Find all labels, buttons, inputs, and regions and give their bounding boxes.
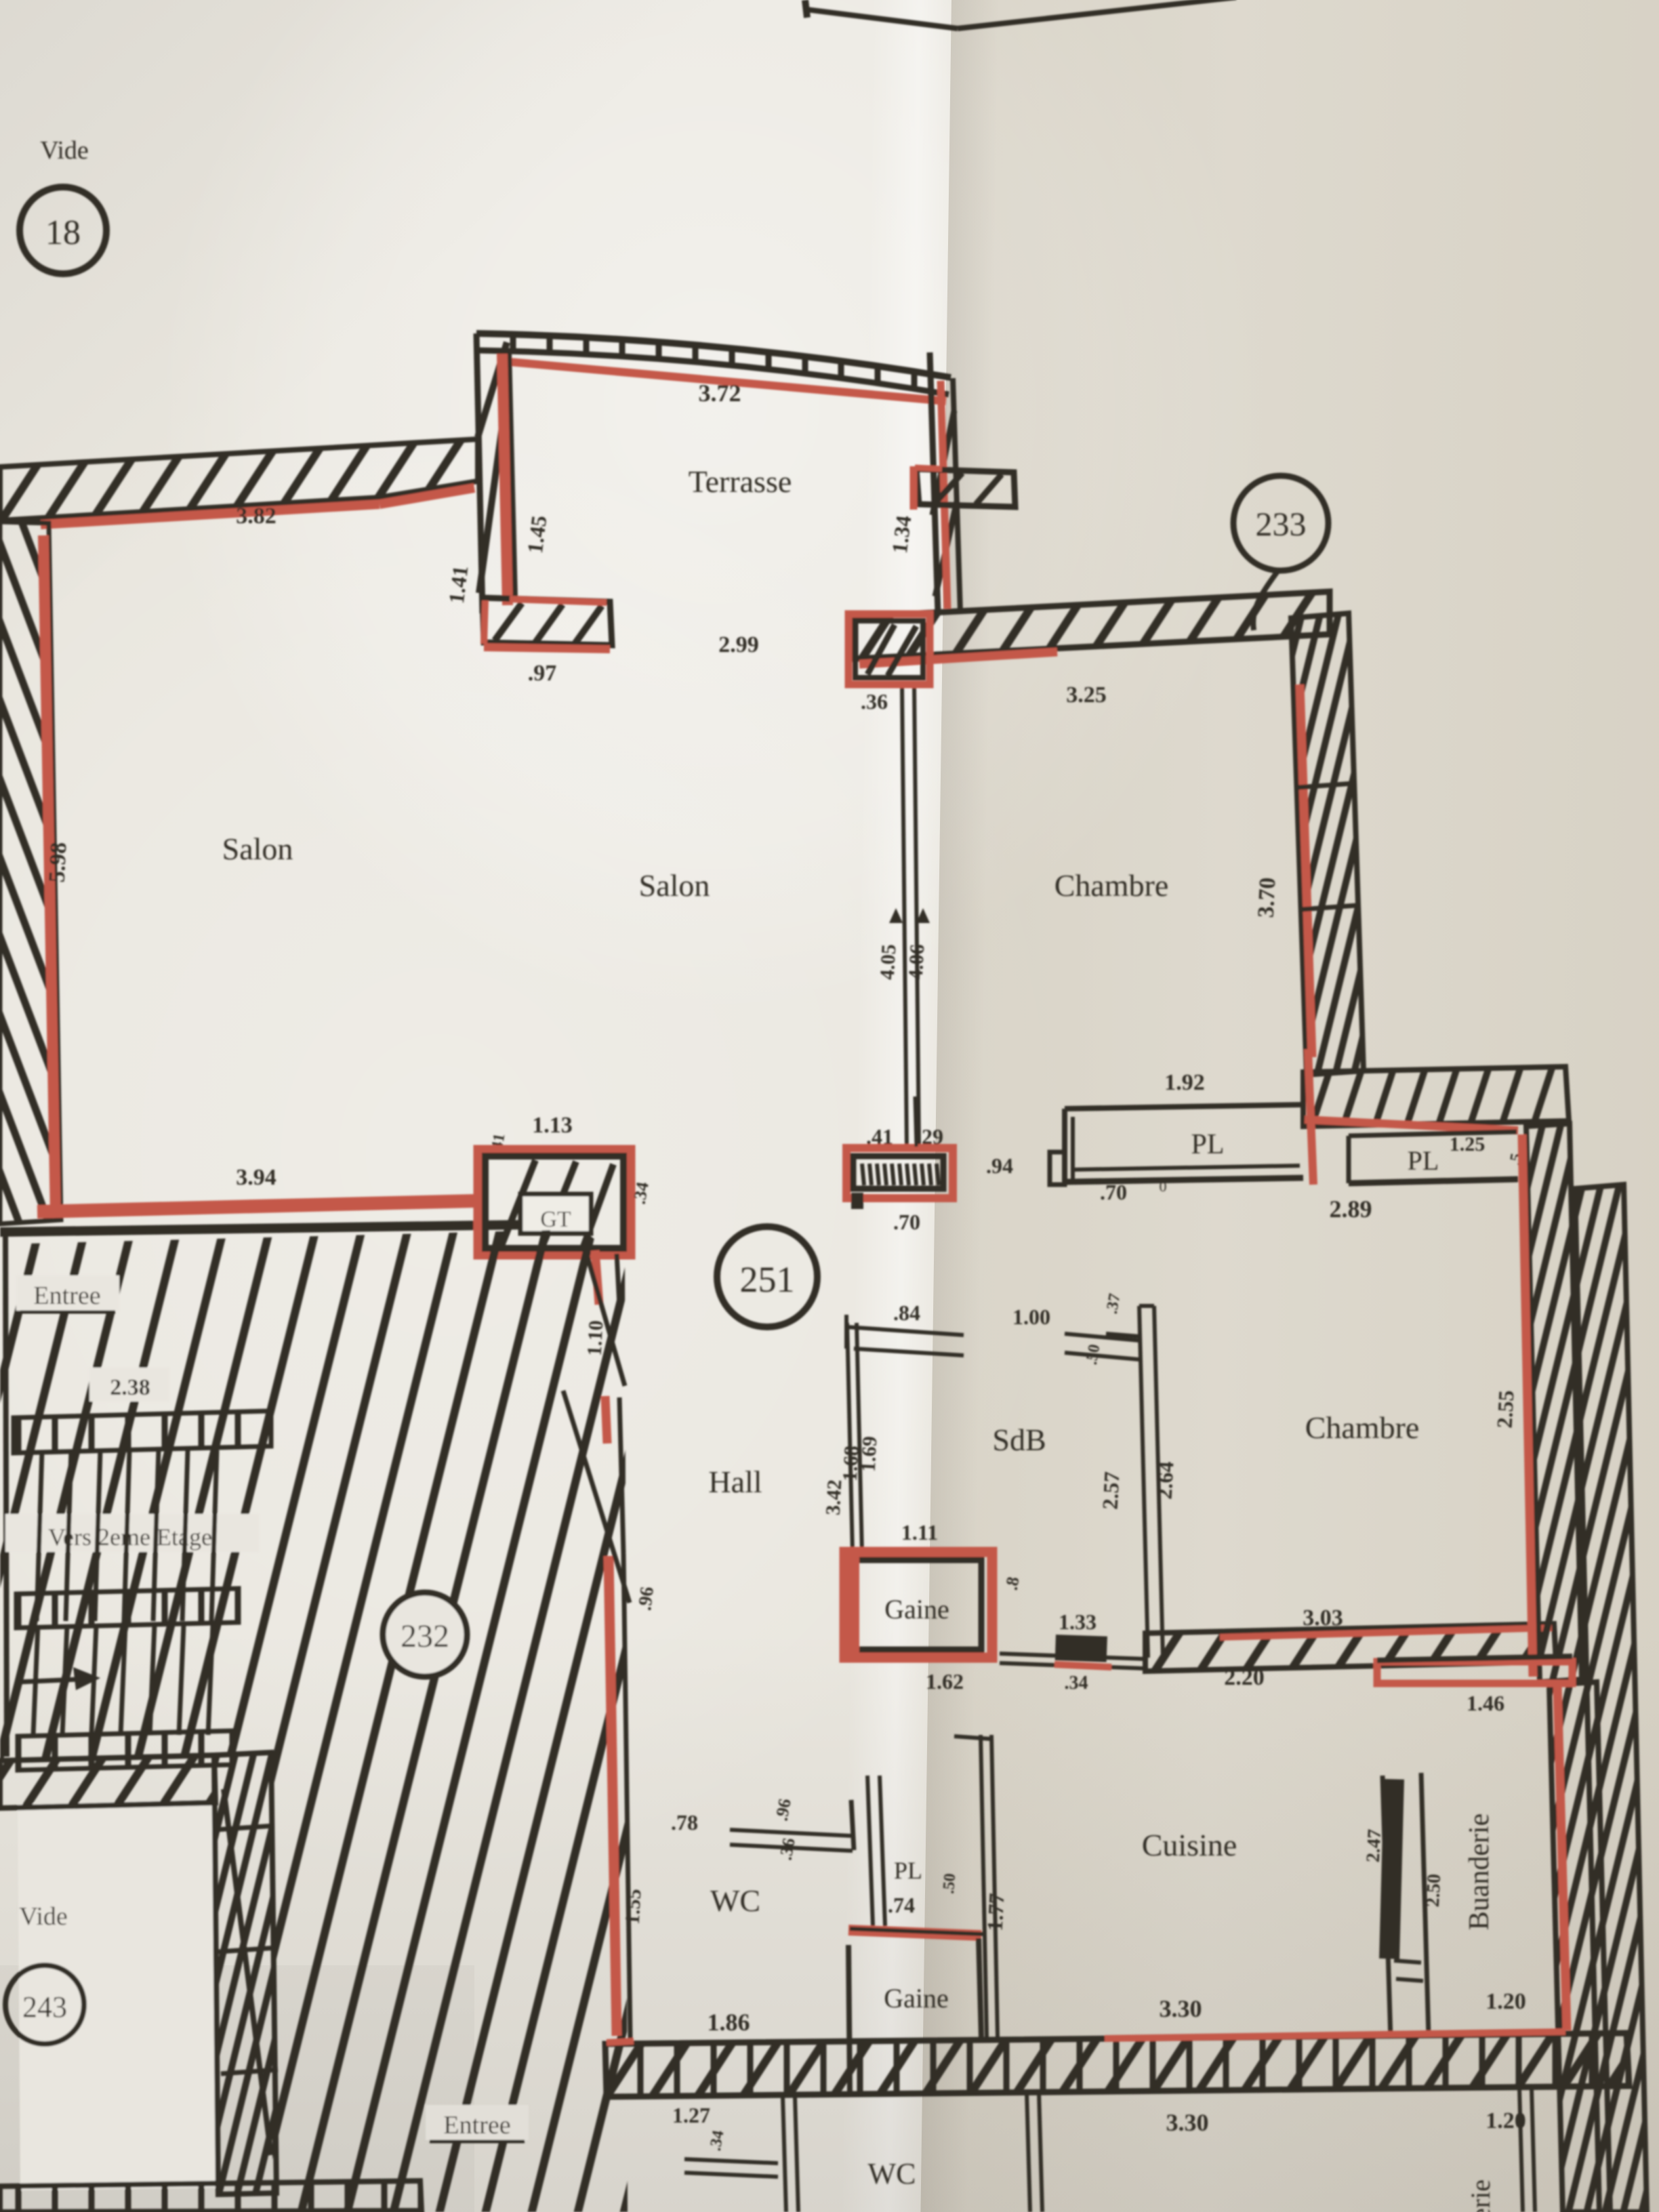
- svg-text:Hall: Hall: [708, 1465, 762, 1499]
- svg-text:.84: .84: [893, 1300, 920, 1325]
- svg-text:2.99: 2.99: [718, 632, 759, 657]
- svg-text:SdB: SdB: [992, 1422, 1046, 1457]
- svg-text:1.68: 1.68: [839, 1445, 863, 1481]
- svg-text:.70: .70: [893, 1210, 920, 1234]
- svg-text:.36: .36: [861, 689, 888, 714]
- svg-text:.78: .78: [671, 1810, 698, 1835]
- svg-text:erie: erie: [1465, 2179, 1496, 2212]
- svg-text:1.77: 1.77: [983, 1893, 1009, 1932]
- svg-text:1.20: 1.20: [1486, 1989, 1526, 2014]
- svg-text:Chambre: Chambre: [1305, 1410, 1420, 1445]
- svg-text:.37: .37: [1103, 1292, 1124, 1315]
- svg-text:Salon: Salon: [222, 832, 293, 866]
- svg-text:.41: .41: [866, 1124, 893, 1149]
- svg-text:2.20: 2.20: [1224, 1665, 1265, 1690]
- svg-text:18: 18: [45, 213, 81, 252]
- svg-text:Cuisine: Cuisine: [1142, 1828, 1237, 1862]
- svg-text:3.70: 3.70: [1253, 877, 1280, 918]
- svg-text:2.47: 2.47: [1363, 1828, 1386, 1863]
- svg-text:5.98: 5.98: [44, 842, 71, 883]
- svg-text:3.82: 3.82: [236, 504, 276, 529]
- svg-text:.96: .96: [634, 1586, 658, 1612]
- svg-text:Chambre: Chambre: [1054, 868, 1169, 903]
- svg-text:3.94: 3.94: [236, 1165, 276, 1190]
- svg-text:2.64: 2.64: [1152, 1461, 1179, 1500]
- svg-text:1.41: 1.41: [444, 565, 473, 605]
- svg-text:Vide: Vide: [40, 136, 89, 165]
- svg-text:Vide: Vide: [19, 1902, 68, 1931]
- svg-text:1.13: 1.13: [532, 1113, 573, 1138]
- svg-text:3.72: 3.72: [699, 380, 741, 407]
- svg-text:4.06: 4.06: [905, 943, 929, 980]
- svg-text:4.05: 4.05: [876, 943, 901, 980]
- svg-text:3.25: 3.25: [1066, 682, 1107, 708]
- svg-text:2.38: 2.38: [110, 1375, 150, 1400]
- svg-text:1.92: 1.92: [1164, 1070, 1205, 1095]
- svg-text:1.33: 1.33: [1059, 1610, 1097, 1634]
- svg-text:.34: .34: [707, 2129, 728, 2152]
- svg-text:GT: GT: [540, 1207, 571, 1232]
- svg-text:1.34: 1.34: [887, 514, 916, 555]
- svg-text:2.55: 2.55: [1492, 1390, 1519, 1429]
- svg-text:PL: PL: [1191, 1129, 1224, 1160]
- svg-text:.29: .29: [916, 1124, 943, 1149]
- svg-text:.50: .50: [940, 1872, 960, 1894]
- svg-text:.34: .34: [1065, 1673, 1088, 1694]
- svg-text:1.11: 1.11: [901, 1520, 938, 1544]
- svg-text:1.27: 1.27: [672, 2103, 710, 2127]
- svg-text:.36: .36: [776, 1837, 799, 1862]
- svg-text:1.25: 1.25: [1450, 1133, 1486, 1155]
- svg-text:1.45: 1.45: [523, 514, 552, 555]
- svg-text:232: 232: [401, 1618, 449, 1654]
- svg-text:WC: WC: [868, 2157, 916, 2190]
- svg-text:2.57: 2.57: [1098, 1471, 1124, 1511]
- svg-text:.74: .74: [888, 1893, 915, 1917]
- svg-text:Gaine: Gaine: [884, 1594, 949, 1624]
- svg-text:Terrasse: Terrasse: [689, 464, 792, 499]
- svg-text:.94: .94: [986, 1153, 1013, 1178]
- svg-text:3.42: 3.42: [822, 1479, 846, 1515]
- svg-text:.34: .34: [630, 1181, 653, 1206]
- svg-text:2.89: 2.89: [1330, 1195, 1372, 1223]
- svg-text:1.55: 1.55: [621, 1888, 646, 1925]
- svg-text:WC: WC: [710, 1883, 760, 1918]
- svg-text:1.86: 1.86: [708, 2009, 750, 2036]
- svg-text:PL: PL: [894, 1857, 922, 1884]
- svg-text:.97: .97: [528, 661, 557, 686]
- svg-text:1.62: 1.62: [926, 1669, 964, 1694]
- svg-text:.96: .96: [772, 1797, 795, 1822]
- svg-text:251: 251: [740, 1259, 795, 1300]
- svg-text:1.10: 1.10: [583, 1319, 608, 1356]
- svg-text:Gaine: Gaine: [884, 1983, 949, 2013]
- svg-text:.70: .70: [1100, 1180, 1127, 1204]
- svg-text:1.46: 1.46: [1467, 1691, 1504, 1715]
- svg-text:3.30: 3.30: [1166, 2109, 1209, 2136]
- svg-text:Buanderie: Buanderie: [1464, 1814, 1495, 1931]
- svg-text:3.30: 3.30: [1160, 1995, 1202, 2022]
- svg-text:Entree: Entree: [443, 2111, 510, 2139]
- svg-text:Salon: Salon: [639, 868, 710, 903]
- svg-text:1.00: 1.00: [1012, 1305, 1050, 1329]
- svg-text:243: 243: [22, 1990, 67, 2024]
- svg-text:0: 0: [1160, 1178, 1167, 1195]
- svg-text:233: 233: [1256, 505, 1307, 543]
- svg-text:Entree: Entree: [33, 1282, 100, 1310]
- svg-text:3.03: 3.03: [1303, 1605, 1343, 1631]
- svg-text:2.50: 2.50: [1422, 1873, 1446, 1908]
- svg-text:PL: PL: [1408, 1145, 1439, 1176]
